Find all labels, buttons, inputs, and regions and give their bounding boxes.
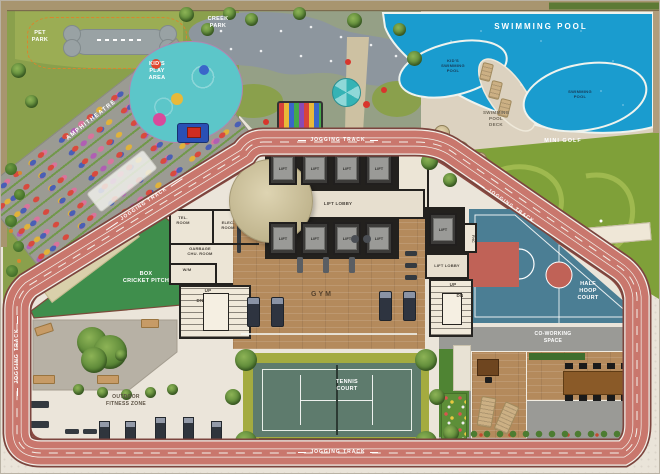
lift-cell: LIFT — [301, 222, 329, 255]
shrub-icon — [5, 215, 17, 227]
flower-icon — [18, 171, 22, 175]
tree-icon — [293, 7, 306, 20]
dumbbell-icon — [405, 263, 417, 268]
meeting-chairs — [565, 363, 633, 369]
dn-label: DN — [452, 293, 468, 299]
weight-plate-icon — [351, 235, 359, 243]
fitness-machine-icon — [183, 417, 194, 439]
fitness-bench-icon — [27, 421, 49, 428]
top-hedge — [549, 3, 659, 10]
treadmill-icon — [247, 297, 260, 327]
jogging-track-text: JOGGING TRACK — [310, 137, 365, 143]
jogging-track-text: JOGGING TRACK — [14, 328, 20, 383]
dumbbell-icon — [65, 429, 79, 434]
kids-swimming-pool-label: KID'S SWIMMING POOL — [439, 58, 467, 74]
swimming-pool-label: SWIMMING POOL — [451, 22, 631, 32]
lift-label: LIFT — [311, 166, 319, 171]
play-equipment — [171, 93, 183, 105]
tel-room-label: TEL. ROOM — [173, 215, 193, 225]
tree-icon — [179, 7, 194, 22]
flower-icon — [9, 229, 13, 233]
lift-cell: LIFT — [301, 152, 329, 185]
tree-icon — [25, 95, 38, 108]
lift-lobby-label: LIFT LOBBY — [293, 201, 383, 207]
bench-icon — [33, 375, 55, 384]
tree-icon — [73, 384, 84, 395]
meeting-table — [563, 371, 637, 395]
partition-wall — [212, 209, 214, 243]
shrub-icon — [14, 283, 24, 293]
center-circle — [546, 262, 572, 288]
play-equipment — [153, 113, 166, 126]
court-bench — [299, 441, 314, 448]
tree-icon — [11, 63, 26, 78]
agility-line — [97, 39, 141, 41]
outdoor-fitness-zone-label: OUTDOOR FITNESS ZONE — [105, 394, 147, 407]
pool-deck-label: SWIMMING POOL DECK — [483, 110, 509, 128]
tree-icon — [347, 13, 362, 28]
shrub-icon — [6, 265, 18, 277]
carousel — [332, 78, 361, 107]
lift-cell: LIFT — [269, 222, 297, 255]
amenity-master-plan: PET PARK AMPHITHEATRE KID'S PLAY AREA CR… — [0, 0, 660, 474]
lift-car: LIFT — [305, 157, 325, 180]
lift-label: LIFT — [439, 227, 447, 232]
lift-car: LIFT — [305, 227, 325, 250]
play-ball — [363, 101, 370, 108]
reception-desk — [477, 359, 499, 376]
weight-plate-icon — [363, 235, 371, 243]
gym-floor-line — [241, 333, 417, 335]
mini-golf-label: MINI GOLF — [531, 138, 595, 145]
lift-car: LIFT — [273, 227, 293, 250]
dumbbell-icon — [83, 429, 97, 434]
umbrella-icon — [453, 141, 469, 157]
bench-icon — [141, 319, 159, 328]
creek-park-label: CREEK PARK — [205, 16, 231, 30]
play-equipment — [199, 65, 209, 75]
court-bench — [343, 441, 358, 448]
gym-bench-icon — [323, 257, 329, 273]
bench-icon — [97, 375, 119, 384]
palm-tree-icon — [429, 389, 445, 405]
play-ball — [263, 119, 269, 125]
half-hoop-court-label: HALF HOOP COURT — [571, 281, 605, 302]
trampoline — [277, 101, 323, 131]
palm-tree-icon — [415, 349, 437, 371]
tree-icon — [115, 349, 127, 361]
lift-label: LIFT — [279, 166, 287, 171]
elec-room-label: ELEC. ROOM — [217, 220, 239, 230]
tree-icon — [393, 23, 406, 36]
partition-wall — [169, 263, 217, 265]
tree-icon — [167, 384, 178, 395]
gym-bench-icon — [349, 257, 355, 273]
co-working-space-label: CO-WORKING SPACE — [534, 331, 572, 344]
shrub-icon — [13, 241, 24, 252]
planter-row — [469, 429, 637, 440]
fitness-machine-icon — [155, 417, 166, 439]
lift-label: LIFT — [279, 236, 287, 241]
partition-wall — [215, 263, 217, 285]
lift-label: LIFT — [343, 166, 351, 171]
umbrella-icon — [434, 125, 450, 141]
treadmill-icon — [379, 291, 392, 321]
treadmill-icon — [271, 297, 284, 327]
dumbbell-icon — [405, 251, 417, 256]
tennis-net — [336, 365, 338, 435]
tree-icon — [407, 51, 422, 66]
lift-car: LIFT — [337, 157, 357, 180]
jogging-track-text: JOGGING TRACK — [310, 449, 365, 455]
up-label: UP — [200, 288, 216, 294]
right-lift-lobby-label: LIFT LOBBY — [425, 263, 469, 268]
jogging-track-label: JOGGING TRACK — [14, 316, 20, 396]
treadmill-icon — [403, 291, 416, 321]
fitness-bench-icon — [27, 401, 49, 408]
fhc-label: FHC — [465, 227, 475, 251]
white-planter — [453, 345, 471, 391]
top-wall-edge — [1, 10, 660, 11]
dn-label: DN — [192, 298, 208, 304]
meeting-chairs — [565, 395, 633, 401]
palm-tree-icon — [415, 431, 437, 453]
palm-tree-icon — [235, 431, 257, 453]
lift-cell: LIFT — [429, 213, 457, 246]
tree-icon — [81, 347, 107, 373]
lift-car: LIFT — [433, 218, 453, 241]
tree-icon — [421, 153, 438, 170]
jogging-track-label: JOGGING TRACK — [298, 137, 378, 143]
up-label: UP — [445, 282, 461, 288]
lift-car: LIFT — [369, 157, 389, 180]
lift-cell: LIFT — [365, 152, 393, 185]
jogging-track-label: JOGGING TRACK — [298, 449, 378, 455]
tree-icon — [443, 425, 459, 441]
tree-icon — [443, 173, 457, 187]
shrub-icon — [14, 189, 25, 200]
lift-label: LIFT — [375, 236, 383, 241]
hedge-planter — [529, 353, 585, 360]
shrub-icon — [5, 163, 17, 175]
small-pool-label: SWIMMING POOL — [567, 89, 593, 99]
flower-icon — [17, 259, 21, 263]
fitness-machine-icon — [211, 421, 222, 443]
lift-car: LIFT — [273, 157, 293, 180]
lift-cell: LIFT — [333, 152, 361, 185]
play-structure — [187, 127, 201, 138]
tennis-hedge — [259, 438, 415, 445]
box-cricket-pitch-label: BOX CRICKET PITCH — [119, 271, 173, 285]
fitness-machine-icon — [99, 421, 110, 443]
palm-tree-icon — [235, 349, 257, 371]
lift-cell: LIFT — [269, 152, 297, 185]
partition-wall — [169, 243, 259, 245]
kids-play-area-label: KID'S PLAY AREA — [141, 61, 173, 82]
gym-bench-icon — [297, 257, 303, 273]
tree-icon — [245, 13, 258, 26]
play-ball — [381, 87, 387, 93]
desk-chair — [485, 377, 492, 383]
palm-tree-icon — [225, 389, 241, 405]
lift-label: LIFT — [311, 236, 319, 241]
gym-label: GYM — [297, 290, 347, 299]
umbrella-icon — [473, 152, 487, 166]
lift-car: LIFT — [369, 227, 389, 250]
lift-label: LIFT — [375, 166, 383, 171]
fitness-machine-icon — [125, 421, 136, 443]
dumbbell-icon — [405, 275, 417, 280]
pet-park-label: PET PARK — [29, 30, 51, 44]
tennis-court-label: TENNIS COURT — [332, 379, 362, 393]
bone-end — [63, 39, 81, 57]
play-ball — [345, 59, 351, 65]
wm-room-label: W/M — [175, 267, 199, 272]
garbage-chute-room-label: GARBAGE CHU. ROOM — [187, 246, 213, 256]
right-wall — [653, 11, 660, 133]
lift-label: LIFT — [343, 236, 351, 241]
